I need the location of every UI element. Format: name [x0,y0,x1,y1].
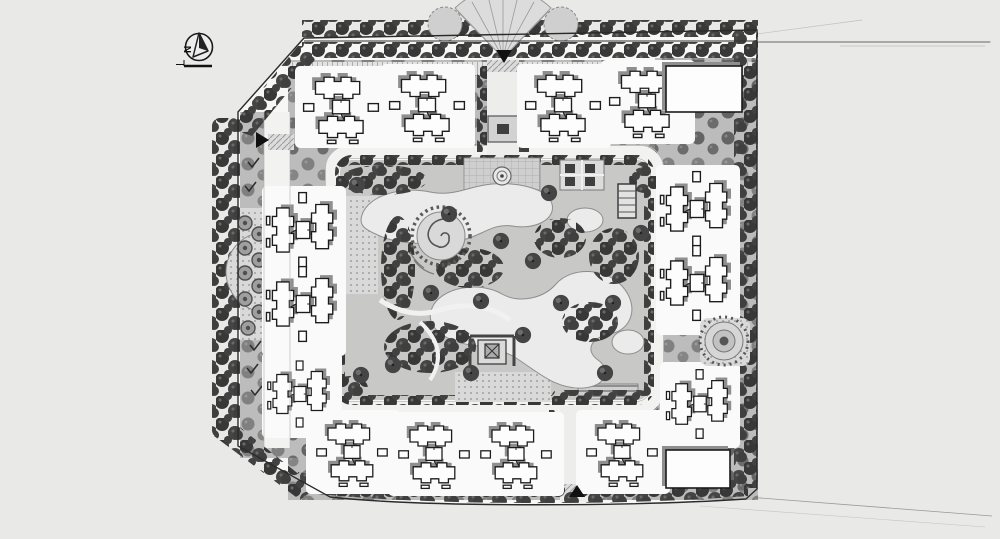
building-slab [662,446,730,488]
building-slab [662,62,742,112]
central-park [332,116,661,403]
north-entrance-axis [487,58,519,158]
formal-quad-garden [560,160,604,190]
crosswalk-north [487,60,519,72]
east-pergola [618,184,636,218]
tree-band-top-inner [302,42,758,58]
site-plan-canvas: N [0,0,1000,539]
east-circular-plaza [700,317,750,366]
north-arrow-label: N [183,46,194,53]
pond-east [612,330,644,354]
site-plan-drawing: N [0,0,1000,539]
north-gate-plaza [488,116,518,142]
axis-fountain [493,167,511,185]
